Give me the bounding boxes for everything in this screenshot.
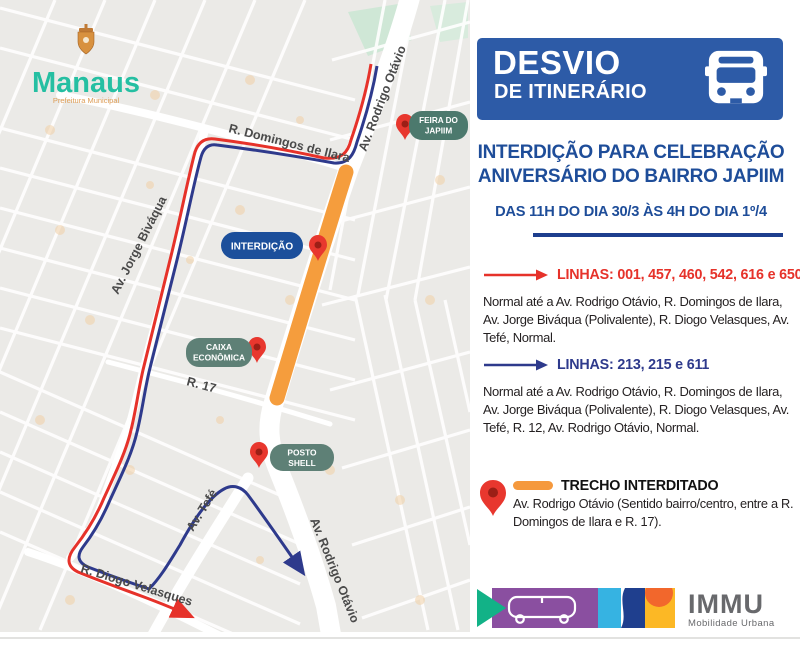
- blue-route-description: Normal até a Av. Rodrigo Otávio, R. Domi…: [483, 383, 795, 437]
- red-route-row: LINHAS: 001, 457, 460, 542, 616 e 650: [483, 267, 800, 283]
- bus-front-icon: [705, 48, 767, 108]
- red-route-description: Normal até a Av. Rodrigo Otávio, R. Domi…: [483, 293, 795, 347]
- bottom-rule: [0, 637, 800, 639]
- badge-feira-line1: FEIRA DO: [419, 116, 458, 125]
- immu-logo-mark: [477, 588, 675, 628]
- badge-posto-shell: POSTO SHELL: [270, 444, 334, 471]
- blocked-description: Av. Rodrigo Otávio (Sentido bairro/centr…: [513, 495, 800, 531]
- blue-route-arrow-icon: [483, 358, 549, 372]
- map-pin-icon: [479, 479, 507, 517]
- red-route-lines-label: LINHAS: 001, 457, 460, 542, 616 e 650: [557, 267, 800, 283]
- blue-route-lines-label: LINHAS: 213, 215 e 611: [557, 357, 709, 373]
- badge-posto-line1: POSTO: [287, 448, 317, 458]
- city-map: R. Domingos de Ilara Av. Rodrigo Otávio …: [0, 0, 470, 632]
- badge-posto-line2: SHELL: [288, 458, 315, 468]
- immu-brand-block: IMMU Mobilidade Urbana: [688, 591, 775, 629]
- header-title: DESVIO: [493, 46, 621, 79]
- badge-interdicao: INTERDIÇÃO: [221, 232, 303, 259]
- sunrise-icon: [645, 588, 675, 628]
- red-route-arrow-icon: [483, 268, 549, 282]
- header-subtitle: DE ITINERÁRIO: [494, 82, 647, 102]
- detour-poster: R. Domingos de Ilara Av. Rodrigo Otávio …: [0, 0, 800, 645]
- schedule-text: DAS 11H DO DIA 30/3 ÀS 4H DO DIA 1º/4: [470, 204, 792, 220]
- divider: [533, 233, 783, 237]
- badge-feira-do-japiim: FEIRA DO JAPIIM: [409, 111, 468, 140]
- badge-caixa-line1: CAIXA: [206, 342, 232, 352]
- badge-caixa-economica: CAIXA ECONÔMICA: [186, 338, 252, 367]
- blocked-title: TRECHO INTERDITADO: [561, 478, 718, 494]
- blocked-segment-swatch: [513, 481, 553, 490]
- manaus-logo-subtitle: Prefeitura Municipal: [53, 96, 120, 105]
- manaus-logo-text: Manaus: [32, 67, 140, 99]
- headline: INTERDIÇÃO PARA CELEBRAÇÃO ANIVERSÁRIO D…: [470, 141, 792, 188]
- immu-tagline: Mobilidade Urbana: [688, 618, 775, 629]
- badge-interdicao-label: INTERDIÇÃO: [231, 240, 293, 253]
- badge-feira-line2: JAPIIM: [425, 127, 452, 136]
- headline-line1: INTERDIÇÃO PARA CELEBRAÇÃO: [470, 141, 792, 165]
- blue-route-row: LINHAS: 213, 215 e 611: [483, 357, 709, 373]
- immu-wordmark: IMMU: [688, 591, 775, 617]
- badge-caixa-line2: ECONÔMICA: [193, 352, 245, 363]
- header-banner: DESVIO DE ITINERÁRIO: [477, 38, 783, 120]
- headline-line2: ANIVERSÁRIO DO BAIRRO JAPIIM: [470, 165, 792, 189]
